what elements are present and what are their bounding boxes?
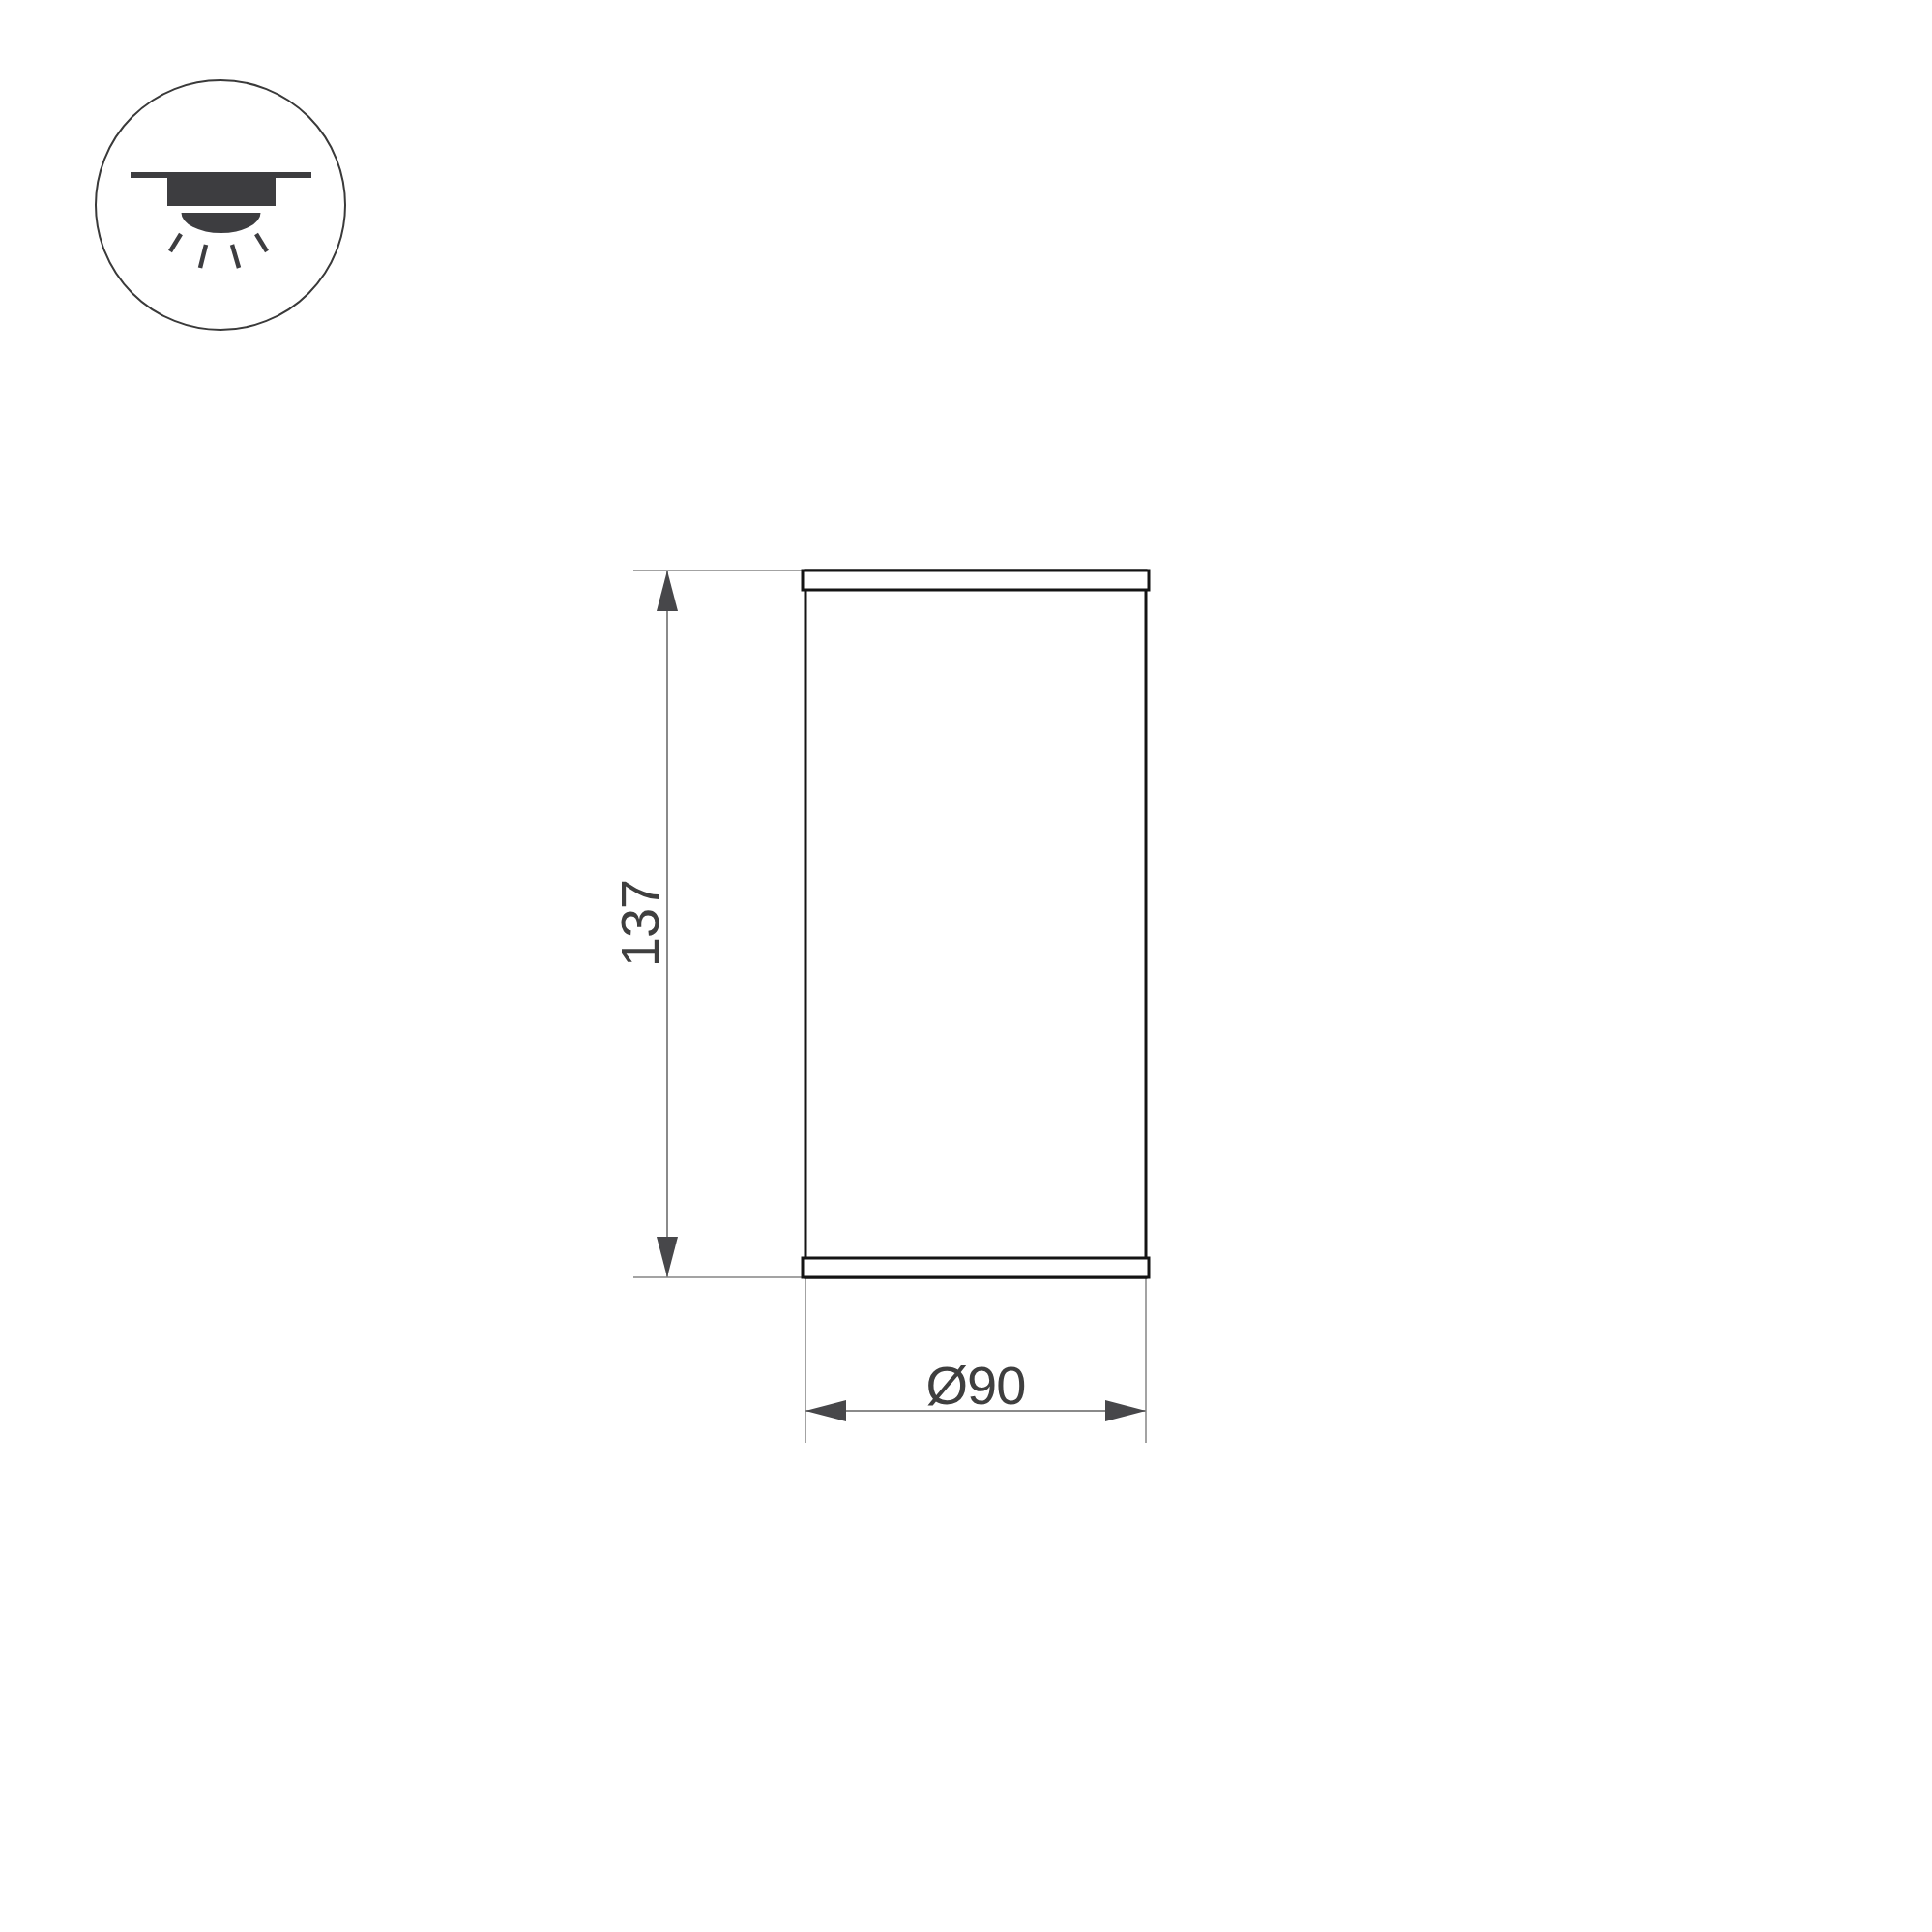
fixture-top-cap xyxy=(803,571,1149,590)
fixture-body-outline xyxy=(805,571,1146,1277)
fixture-bottom-cap xyxy=(803,1258,1149,1277)
dimension-drawing: 137 Ø90 xyxy=(0,0,1932,1932)
arrow-right-icon xyxy=(1105,1400,1146,1421)
height-dimension-label: 137 xyxy=(609,880,670,967)
diameter-dimension-label: Ø90 xyxy=(926,1355,1026,1416)
arrow-down-icon xyxy=(657,1237,678,1277)
arrow-left-icon xyxy=(805,1400,846,1421)
arrow-up-icon xyxy=(657,571,678,611)
luminaire-drawing-canvas: 137 Ø90 xyxy=(0,0,1932,1932)
